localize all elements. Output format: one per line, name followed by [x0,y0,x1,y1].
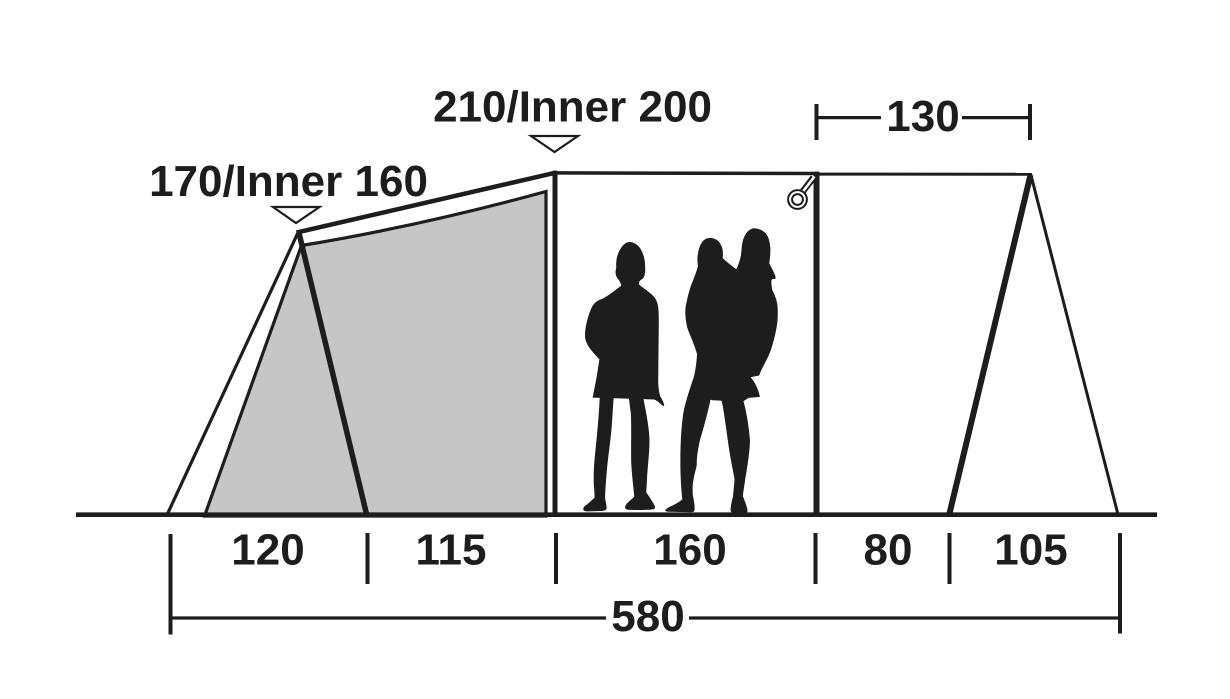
svg-text:170/Inner 160: 170/Inner 160 [149,157,428,206]
svg-text:130: 130 [886,92,959,141]
svg-text:120: 120 [231,526,304,575]
svg-text:115: 115 [416,526,487,575]
svg-text:80: 80 [864,526,913,575]
svg-text:210/Inner 200: 210/Inner 200 [433,83,712,132]
svg-text:580: 580 [611,592,684,641]
svg-text:105: 105 [994,526,1067,575]
svg-text:160: 160 [653,526,726,575]
